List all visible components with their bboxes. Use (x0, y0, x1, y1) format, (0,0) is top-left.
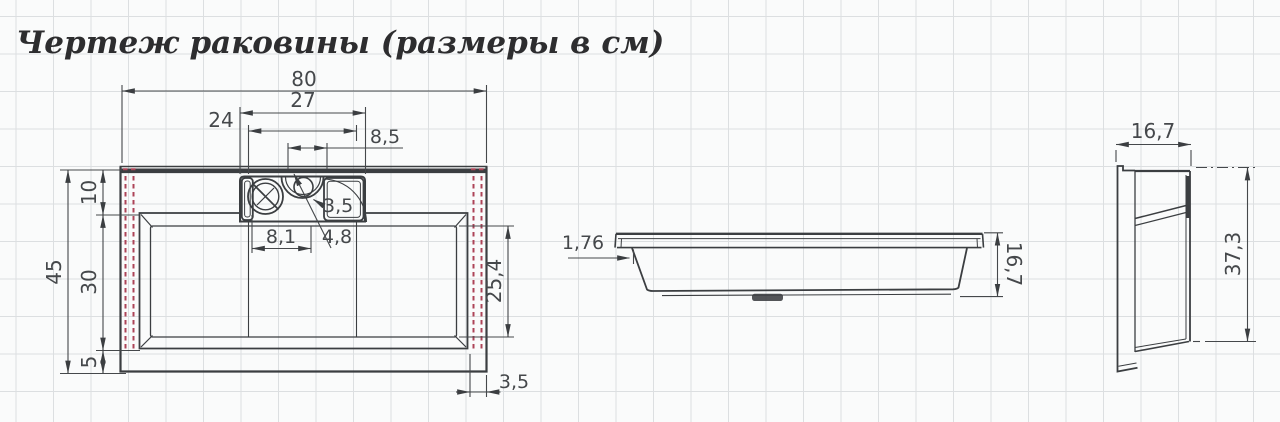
dim-10-label: 10 (77, 180, 101, 205)
dim-45-label: 45 (42, 259, 66, 284)
dim-85-label: 8,5 (370, 126, 400, 148)
drain (752, 294, 783, 301)
sink-technical-drawing: Чертеж раковины (размеры в см) (0, 0, 1280, 422)
drawing-title: Чертеж раковины (размеры в см) (16, 25, 664, 61)
dim-167-side-label: 16,7 (1131, 119, 1176, 143)
grid-paper (0, 0, 1280, 422)
dim-5-label: 5 (77, 356, 101, 369)
dim-254-label: 25,4 (482, 259, 506, 304)
dim-35b-label: 3,5 (499, 371, 529, 393)
dim-27-label: 27 (290, 88, 315, 112)
dim-176-label: 1,76 (562, 232, 604, 254)
dim-24-label: 24 (208, 108, 233, 132)
drawing-canvas: Чертеж раковины (размеры в см) (0, 0, 1280, 422)
dim-167-front-label: 16,7 (1002, 242, 1026, 287)
dim-35-label: 3,5 (323, 195, 353, 217)
dim-30-label: 30 (77, 269, 101, 294)
dim-81-label: 8,1 (266, 226, 296, 248)
dim-48-label: 4,8 (322, 226, 352, 248)
dim-373-label: 37,3 (1221, 232, 1245, 277)
